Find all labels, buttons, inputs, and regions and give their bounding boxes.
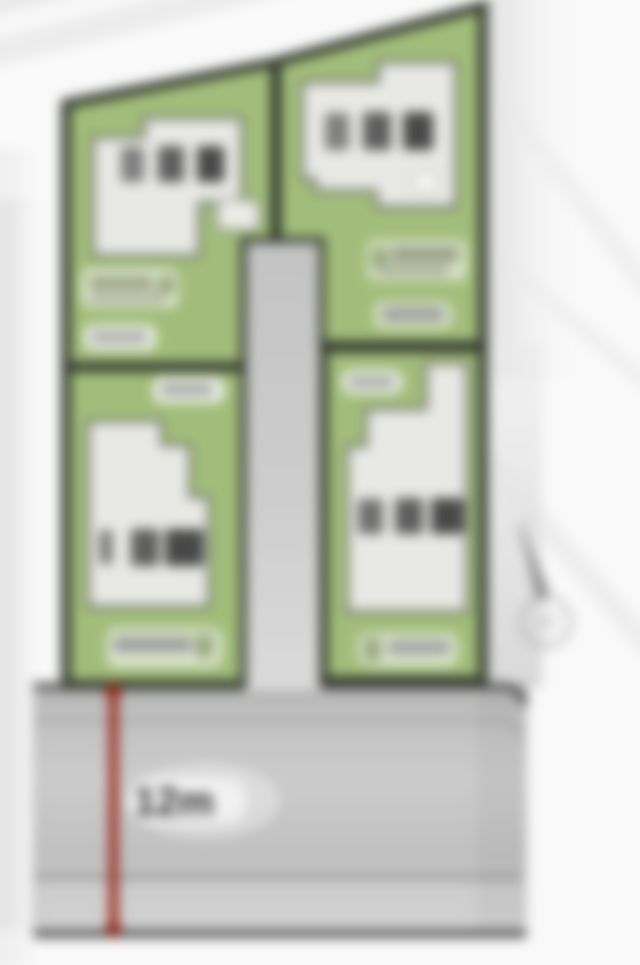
- svg-text:12m: 12m: [134, 780, 214, 824]
